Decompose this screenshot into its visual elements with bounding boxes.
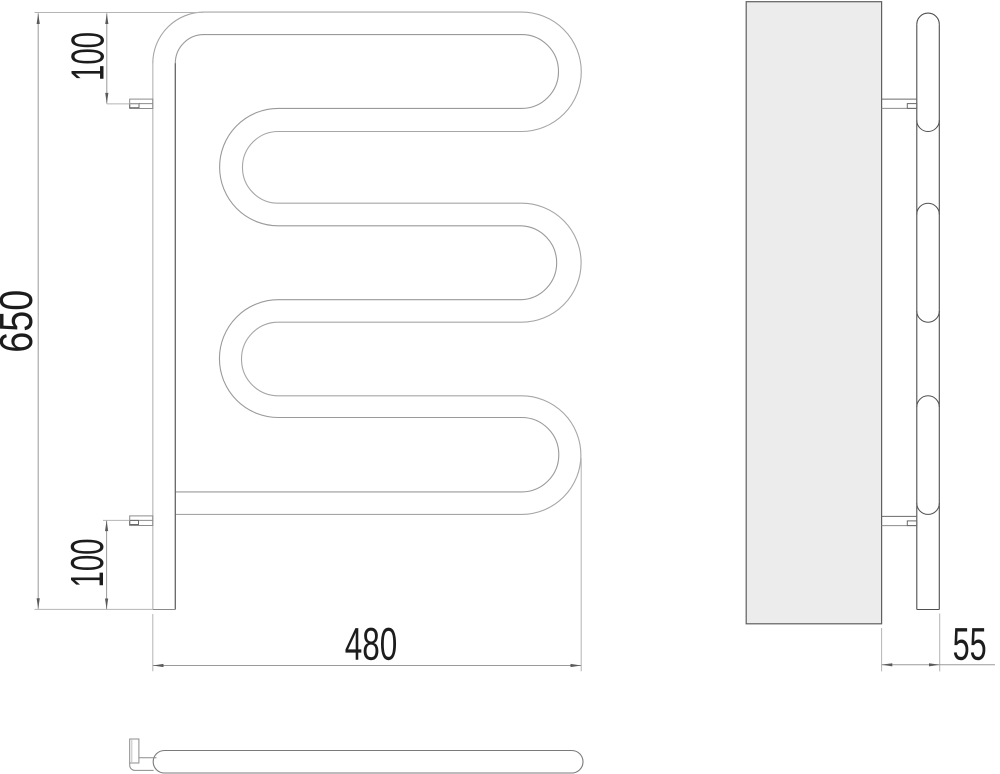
svg-text:100: 100 — [62, 32, 114, 81]
svg-text:650: 650 — [0, 290, 42, 353]
svg-text:55: 55 — [953, 618, 987, 670]
svg-text:480: 480 — [345, 618, 398, 670]
svg-text:100: 100 — [61, 539, 113, 588]
